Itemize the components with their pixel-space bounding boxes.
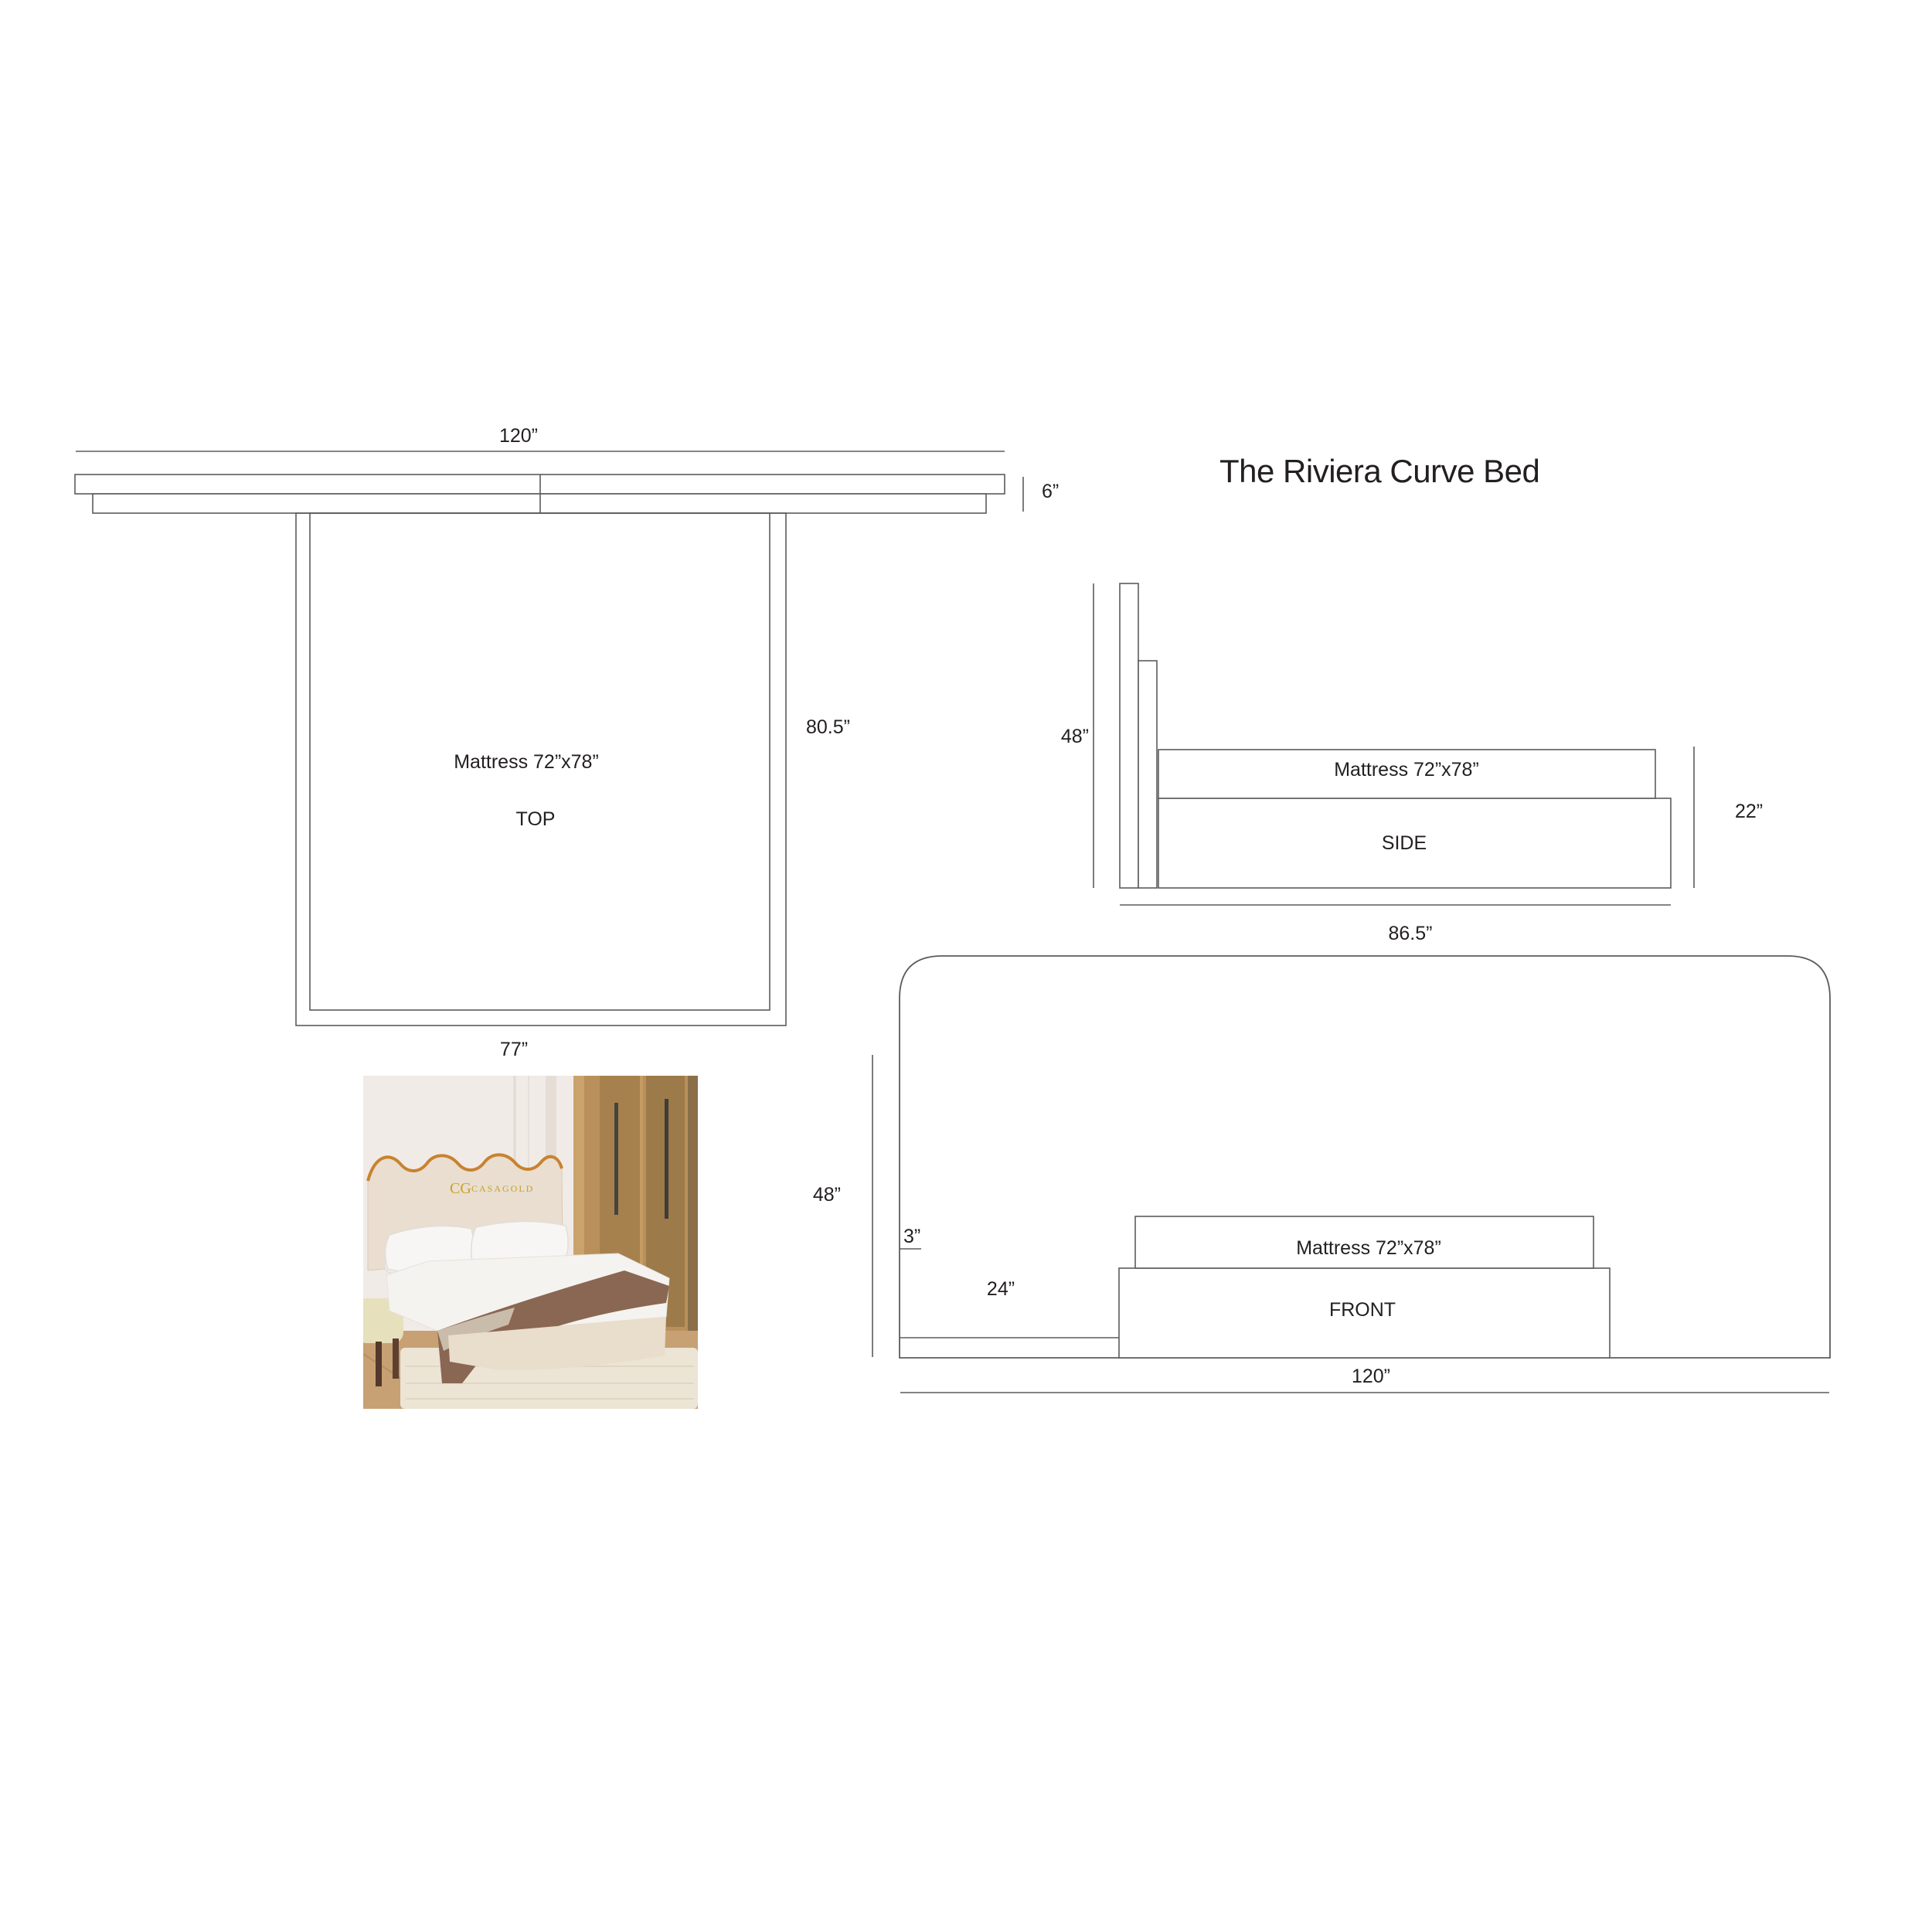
page-title: The Riviera Curve Bed [1219, 453, 1539, 490]
wardrobe-handle [614, 1103, 618, 1215]
front-platform-dim: 24” [962, 1277, 1039, 1301]
front-mattress-label: Mattress 72”x78” [1253, 1236, 1485, 1260]
front-width-dim: 120” [1332, 1365, 1410, 1388]
side-view-drawing [1094, 583, 1694, 905]
side-headboard-tall [1120, 583, 1138, 888]
top-view-label: TOP [458, 808, 613, 831]
top-width-dim: 120” [480, 424, 557, 447]
top-frame-width-dim: 77” [475, 1038, 553, 1061]
side-length-dim: 86.5” [1349, 922, 1472, 945]
front-view-drawing [872, 956, 1830, 1393]
top-thickness-dim: 6” [1042, 480, 1059, 503]
top-mattress-label: Mattress 72”x78” [410, 750, 642, 774]
product-photo: CG CASAGOLD [363, 1076, 698, 1409]
drawing-sheet: The Riviera Curve Bed 120” 6” 80.5” Matt… [0, 0, 1932, 1932]
top-view-drawing [75, 451, 1023, 1026]
line-art [0, 0, 1932, 1932]
front-view-label: FRONT [1285, 1298, 1440, 1321]
wardrobe-handle [665, 1099, 668, 1219]
brand-name: CASAGOLD [471, 1183, 534, 1194]
side-mattress-label: Mattress 72”x78” [1291, 758, 1522, 781]
side-view-label: SIDE [1327, 832, 1481, 855]
top-headboard-inner [93, 494, 986, 513]
side-height-dim: 48” [1012, 725, 1089, 748]
top-length-dim: 80.5” [806, 716, 850, 739]
side-base-height-dim: 22” [1735, 800, 1763, 823]
brand-logo: CG [450, 1180, 471, 1197]
front-height-dim: 48” [764, 1183, 841, 1206]
front-trim-dim: 3” [903, 1225, 920, 1248]
side-headboard-short [1138, 661, 1157, 888]
